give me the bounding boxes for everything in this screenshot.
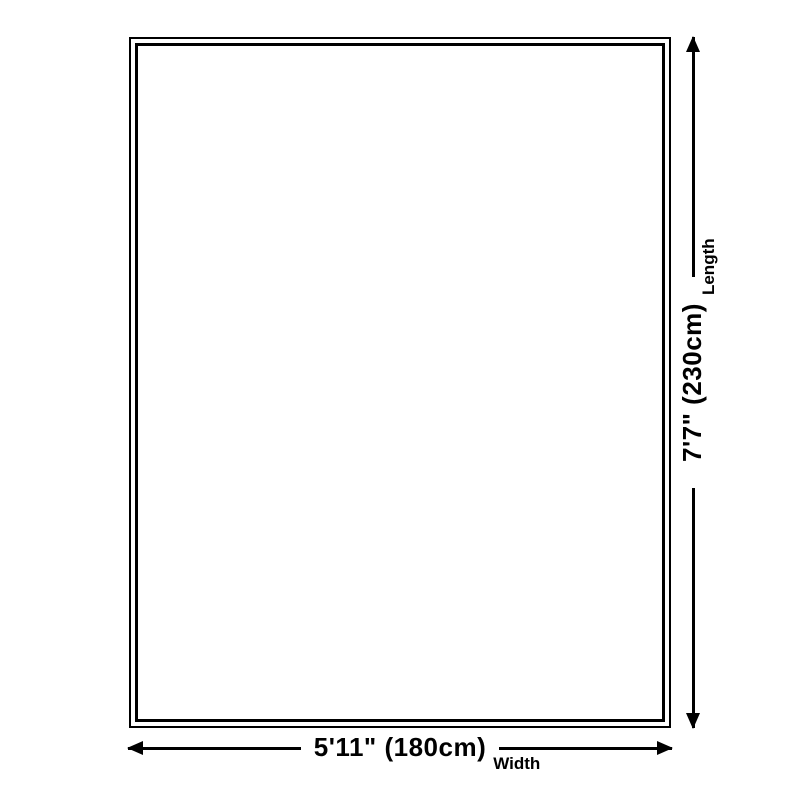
length-value: 7'7" (230cm) xyxy=(678,303,708,462)
arrow-left-icon xyxy=(127,741,143,755)
width-dimension-line-right: Width xyxy=(499,747,672,750)
length-label: Length xyxy=(700,238,719,295)
width-label: Width xyxy=(493,755,540,774)
arrow-up-icon xyxy=(686,36,700,52)
arrow-right-icon xyxy=(657,741,673,755)
rug-size-diagram: 5'11" (180cm) Width 7'7" (230cm) Length xyxy=(0,0,800,800)
width-dimension: 5'11" (180cm) Width xyxy=(128,726,672,770)
length-dimension-line-bottom xyxy=(692,488,695,728)
length-dimension-line-top: Length xyxy=(692,37,695,277)
rug-inner-border xyxy=(135,43,665,722)
arrow-down-icon xyxy=(686,713,700,729)
width-dimension-line-left xyxy=(128,747,301,750)
rug-outline xyxy=(129,37,671,728)
width-value: 5'11" (180cm) xyxy=(314,733,486,763)
length-dimension: 7'7" (230cm) Length xyxy=(671,37,715,728)
